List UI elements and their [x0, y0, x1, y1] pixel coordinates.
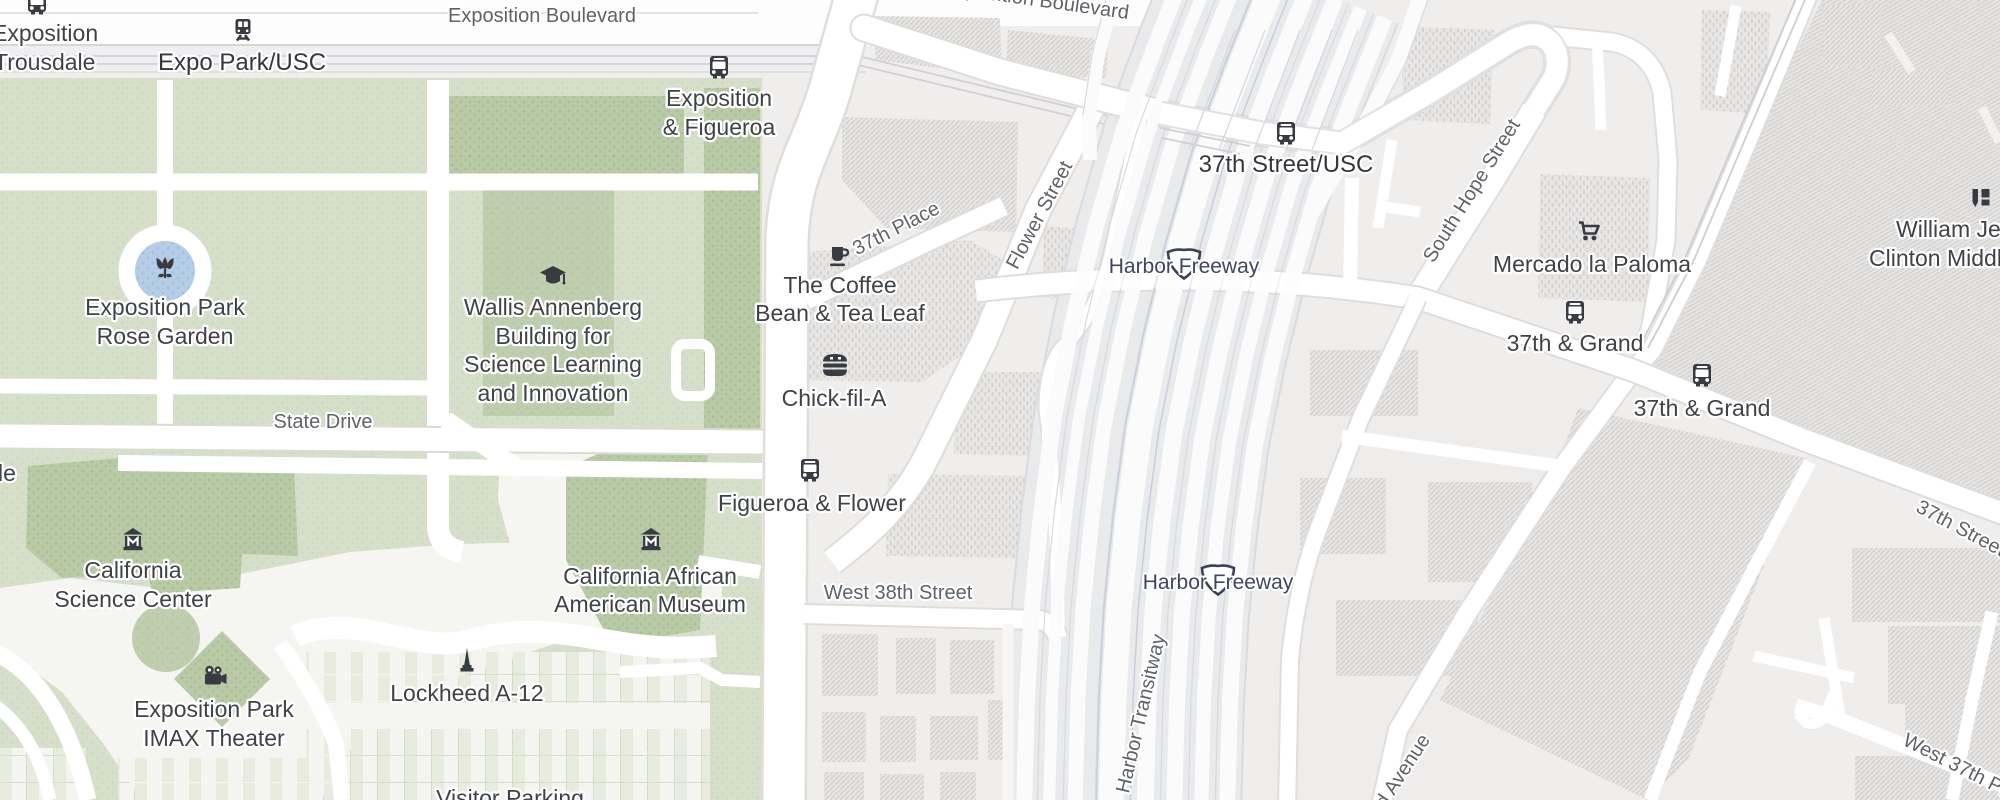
svg-text:Chick-fil-A: Chick-fil-A	[782, 385, 887, 411]
svg-text:California African: California African	[563, 563, 737, 589]
svg-text:Building for: Building for	[495, 323, 610, 349]
svg-text:Exposition Park: Exposition Park	[85, 294, 245, 320]
svg-text:Harbor Freeway: Harbor Freeway	[1143, 571, 1294, 594]
svg-text:37th Street/USC: 37th Street/USC	[1199, 151, 1374, 178]
svg-text:Mercado la Paloma: Mercado la Paloma	[1493, 251, 1691, 277]
svg-text:Wallis Annenberg: Wallis Annenberg	[464, 294, 642, 320]
svg-text:Science Center: Science Center	[54, 586, 212, 612]
svg-text:and Innovation: and Innovation	[478, 380, 629, 406]
svg-text:Harbor Freeway: Harbor Freeway	[1109, 255, 1260, 278]
svg-text:California: California	[84, 557, 181, 583]
svg-text:Science Learning: Science Learning	[464, 351, 642, 377]
svg-text:IMAX Theater: IMAX Theater	[143, 725, 285, 751]
svg-text:Trousdale: Trousdale	[0, 49, 95, 75]
svg-text:Exposition: Exposition	[666, 85, 772, 111]
svg-text:37th & Grand: 37th & Grand	[1634, 395, 1771, 421]
svg-text:Visitor Parking: Visitor Parking	[436, 785, 584, 800]
svg-text:Exposition Boulevard: Exposition Boulevard	[448, 5, 636, 27]
svg-text:& Figueroa: & Figueroa	[663, 114, 776, 140]
svg-text:West 38th Street: West 38th Street	[824, 582, 973, 604]
svg-text:William Jefferson: William Jefferson	[1896, 216, 2000, 242]
svg-text:Exposition: Exposition	[0, 20, 98, 46]
svg-text:Expo Park/USC: Expo Park/USC	[158, 49, 326, 76]
svg-text:American Museum: American Museum	[554, 591, 746, 617]
svg-text:The Coffee: The Coffee	[783, 272, 896, 298]
svg-text:37th & Grand: 37th & Grand	[1507, 330, 1644, 356]
svg-text:Exposition Park: Exposition Park	[134, 696, 294, 722]
svg-text:Lockheed A-12: Lockheed A-12	[390, 680, 543, 706]
svg-text:Rose Garden: Rose Garden	[97, 323, 234, 349]
svg-text:Bean & Tea Leaf: Bean & Tea Leaf	[755, 300, 925, 326]
svg-text:le: le	[0, 460, 16, 486]
svg-text:State Drive: State Drive	[274, 411, 373, 433]
svg-text:Figueroa & Flower: Figueroa & Flower	[718, 490, 906, 516]
svg-text:Clinton Middle Sch: Clinton Middle Sch	[1869, 245, 2000, 271]
